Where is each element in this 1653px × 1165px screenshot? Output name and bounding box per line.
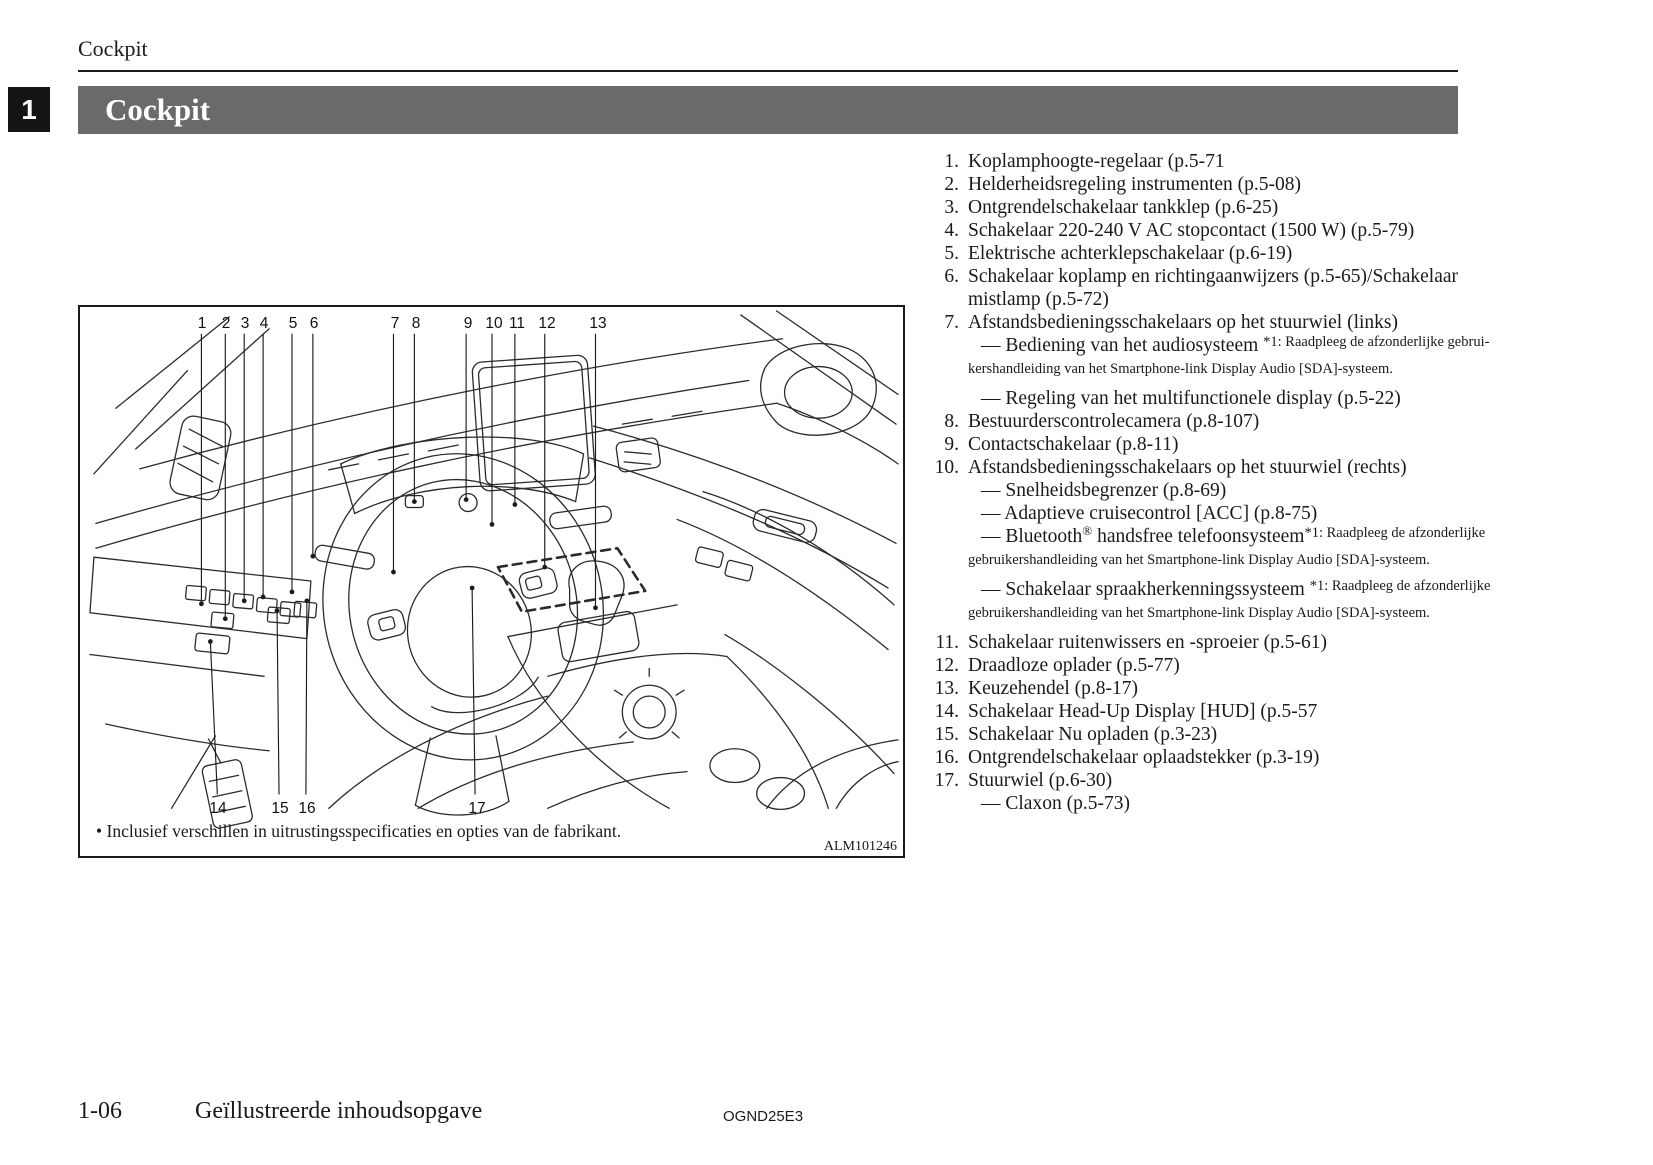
legend-item-number: 16. [925, 746, 959, 769]
legend-item-text: Draadloze oplader (p.5-77) [968, 654, 1180, 677]
legend-item-text: Elektrische achterklepschakelaar (p.6-19… [968, 242, 1292, 265]
footnote-continuation: gebruikershandleiding van het Smartphone… [968, 603, 1490, 622]
legend-item-text: Stuurwiel (p.6-30)— Claxon (p.5-73) [968, 769, 1130, 815]
callout-number: 4 [260, 315, 269, 333]
header-rule [78, 70, 1458, 72]
callout-number: 13 [589, 315, 606, 333]
callout-number: 16 [298, 800, 315, 818]
legend-item-number: 9. [925, 433, 959, 456]
chapter-tab: 1 [8, 87, 50, 132]
legend-item-number: 13. [925, 677, 959, 700]
legend-item-text: Schakelaar ruitenwissers en -sproeier (p… [968, 631, 1327, 654]
callout-number: 14 [209, 800, 226, 818]
legend-item-number: 14. [925, 700, 959, 723]
legend-sub-item: — Adaptieve cruisecontrol [ACC] (p.8-75) [968, 502, 1490, 525]
diagram-caption: • Inclusief verschillen in uitrustingssp… [96, 821, 621, 842]
legend-item-text: Contactschakelaar (p.8-11) [968, 433, 1178, 456]
legend-item: 8.Bestuurderscontrolecamera (p.8-107) [925, 410, 1490, 433]
callout-number: 6 [310, 315, 319, 333]
legend-item-number: 17. [925, 769, 959, 815]
legend-item: 12.Draadloze oplader (p.5-77) [925, 654, 1490, 677]
chapter-number: 1 [21, 94, 37, 126]
legend-item: 1.Koplamphoogte-regelaar (p.5-71 [925, 150, 1490, 173]
callout-number: 8 [412, 315, 421, 333]
callout-number: 2 [222, 315, 231, 333]
legend-sub-item: — Bediening van het audiosysteem *1: Raa… [968, 334, 1489, 359]
legend-item-text: Afstandsbedieningsschakelaars op het stu… [968, 311, 1489, 410]
legend-item: 2.Helderheidsregeling instrumenten (p.5-… [925, 173, 1490, 196]
banner-title: Cockpit [105, 92, 210, 128]
footnote-continuation: gebruikershandleiding van het Smartphone… [968, 550, 1490, 569]
callout-number: 11 [509, 315, 525, 333]
legend-sub-item: — Schakelaar spraakherkenningssysteem *1… [968, 578, 1490, 603]
manual-page: Cockpit 1 Cockpit [0, 0, 1653, 1165]
legend-item-number: 7. [925, 311, 959, 410]
legend-item-number: 8. [925, 410, 959, 433]
legend-item: 9.Contactschakelaar (p.8-11) [925, 433, 1490, 456]
legend-item-number: 15. [925, 723, 959, 746]
legend-item: 4.Schakelaar 220-240 V AC stopcontact (1… [925, 219, 1490, 242]
legend-item-number: 5. [925, 242, 959, 265]
callout-number: 1 [198, 315, 207, 333]
section-banner: Cockpit [78, 86, 1458, 134]
legend-item: 6.Schakelaar koplamp en richtingaanwijze… [925, 265, 1490, 311]
footer-section-title: Geïllustreerde inhoudsopgave [195, 1098, 482, 1125]
callout-number: 15 [271, 800, 288, 818]
legend-item-text: Koplamphoogte-regelaar (p.5-71 [968, 150, 1225, 173]
legend-item-text: Ontgrendelschakelaar tankklep (p.6-25) [968, 196, 1278, 219]
legend-item: 3.Ontgrendelschakelaar tankklep (p.6-25) [925, 196, 1490, 219]
legend-item-number: 1. [925, 150, 959, 173]
callout-number: 5 [289, 315, 298, 333]
legend-sub-item: — Bluetooth® handsfree telefoonsysteem*1… [968, 525, 1490, 550]
legend-item-text: Schakelaar koplamp en richtingaanwijzers… [968, 265, 1458, 311]
callout-labels: 1234567891011121314151617 [80, 307, 903, 856]
page-header-title: Cockpit [78, 36, 148, 62]
diagram-figure: 1234567891011121314151617 • Inclusief ve… [78, 305, 905, 858]
legend-sub-item: — Regeling van het multifunctionele disp… [968, 387, 1489, 410]
legend-item: 10.Afstandsbedieningsschakelaars op het … [925, 456, 1490, 631]
legend-item: 11.Schakelaar ruitenwissers en -sproeier… [925, 631, 1490, 654]
callout-number: 10 [485, 315, 502, 333]
callout-number: 3 [241, 315, 250, 333]
legend-item-text: Helderheidsregeling instrumenten (p.5-08… [968, 173, 1301, 196]
legend-item-text: Schakelaar Head-Up Display [HUD] (p.5-57 [968, 700, 1317, 723]
callout-number: 9 [464, 315, 473, 333]
legend-item-text: Schakelaar Nu opladen (p.3-23) [968, 723, 1217, 746]
legend-item-number: 3. [925, 196, 959, 219]
callout-number: 17 [468, 800, 485, 818]
footer-page-number: 1-06 [78, 1098, 122, 1125]
legend-item: 5.Elektrische achterklepschakelaar (p.6-… [925, 242, 1490, 265]
legend-item-number: 11. [925, 631, 959, 654]
legend-item: 14.Schakelaar Head-Up Display [HUD] (p.5… [925, 700, 1490, 723]
legend-item-text: Ontgrendelschakelaar oplaadstekker (p.3-… [968, 746, 1319, 769]
callout-number: 12 [538, 315, 555, 333]
legend-item-number: 4. [925, 219, 959, 242]
legend-item: 17.Stuurwiel (p.6-30)— Claxon (p.5-73) [925, 769, 1490, 815]
legend-item-number: 6. [925, 265, 959, 311]
legend-item: 7.Afstandsbedieningsschakelaars op het s… [925, 311, 1490, 410]
legend-sub-item: — Snelheidsbegrenzer (p.8-69) [968, 479, 1490, 502]
legend-item-text: Bestuurderscontrolecamera (p.8-107) [968, 410, 1259, 433]
callout-number: 7 [391, 315, 400, 333]
legend-item-text: Schakelaar 220-240 V AC stopcontact (150… [968, 219, 1414, 242]
legend-item-number: 12. [925, 654, 959, 677]
legend-item-text: Afstandsbedieningsschakelaars op het stu… [968, 456, 1490, 631]
legend-item: 13.Keuzehendel (p.8-17) [925, 677, 1490, 700]
figure-code: ALM101246 [824, 839, 897, 855]
legend-list: 1.Koplamphoogte-regelaar (p.5-712.Helder… [925, 150, 1490, 815]
legend-item: 16.Ontgrendelschakelaar oplaadstekker (p… [925, 746, 1490, 769]
legend-item: 15.Schakelaar Nu opladen (p.3-23) [925, 723, 1490, 746]
footer-doc-code: OGND25E3 [723, 1108, 803, 1125]
footnote-continuation: kershandleiding van het Smartphone-link … [968, 359, 1489, 378]
legend-sub-item: — Claxon (p.5-73) [968, 792, 1130, 815]
legend-item-text: Keuzehendel (p.8-17) [968, 677, 1138, 700]
legend-item-number: 10. [925, 456, 959, 631]
legend-item-number: 2. [925, 173, 959, 196]
